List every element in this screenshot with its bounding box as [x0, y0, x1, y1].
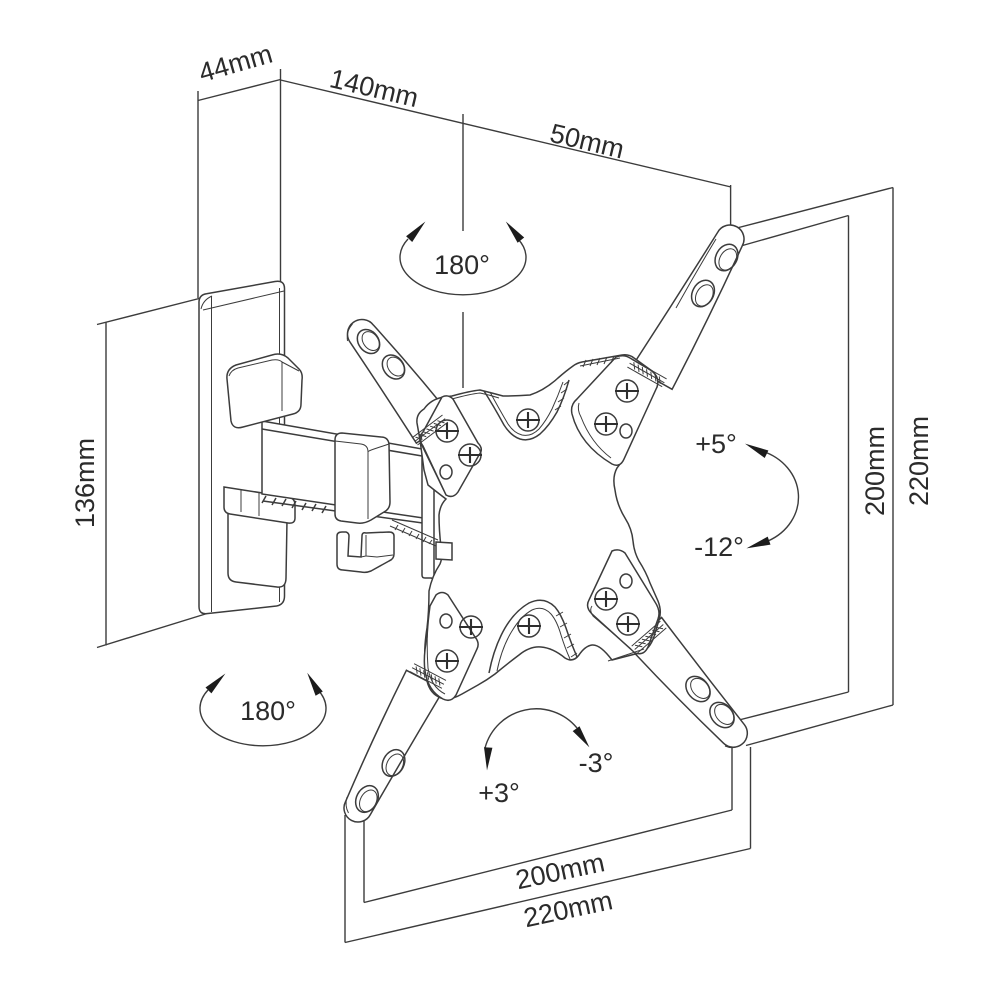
svg-text:180°: 180° — [240, 696, 296, 726]
svg-text:-3°: -3° — [579, 748, 614, 778]
svg-text:200mm: 200mm — [860, 426, 890, 516]
svg-text:+3°: +3° — [478, 778, 520, 808]
svg-text:220mm: 220mm — [904, 416, 934, 506]
svg-text:+5°: +5° — [695, 429, 737, 459]
svg-text:180°: 180° — [434, 250, 490, 280]
svg-text:136mm: 136mm — [70, 438, 100, 528]
svg-text:-12°: -12° — [694, 532, 744, 562]
